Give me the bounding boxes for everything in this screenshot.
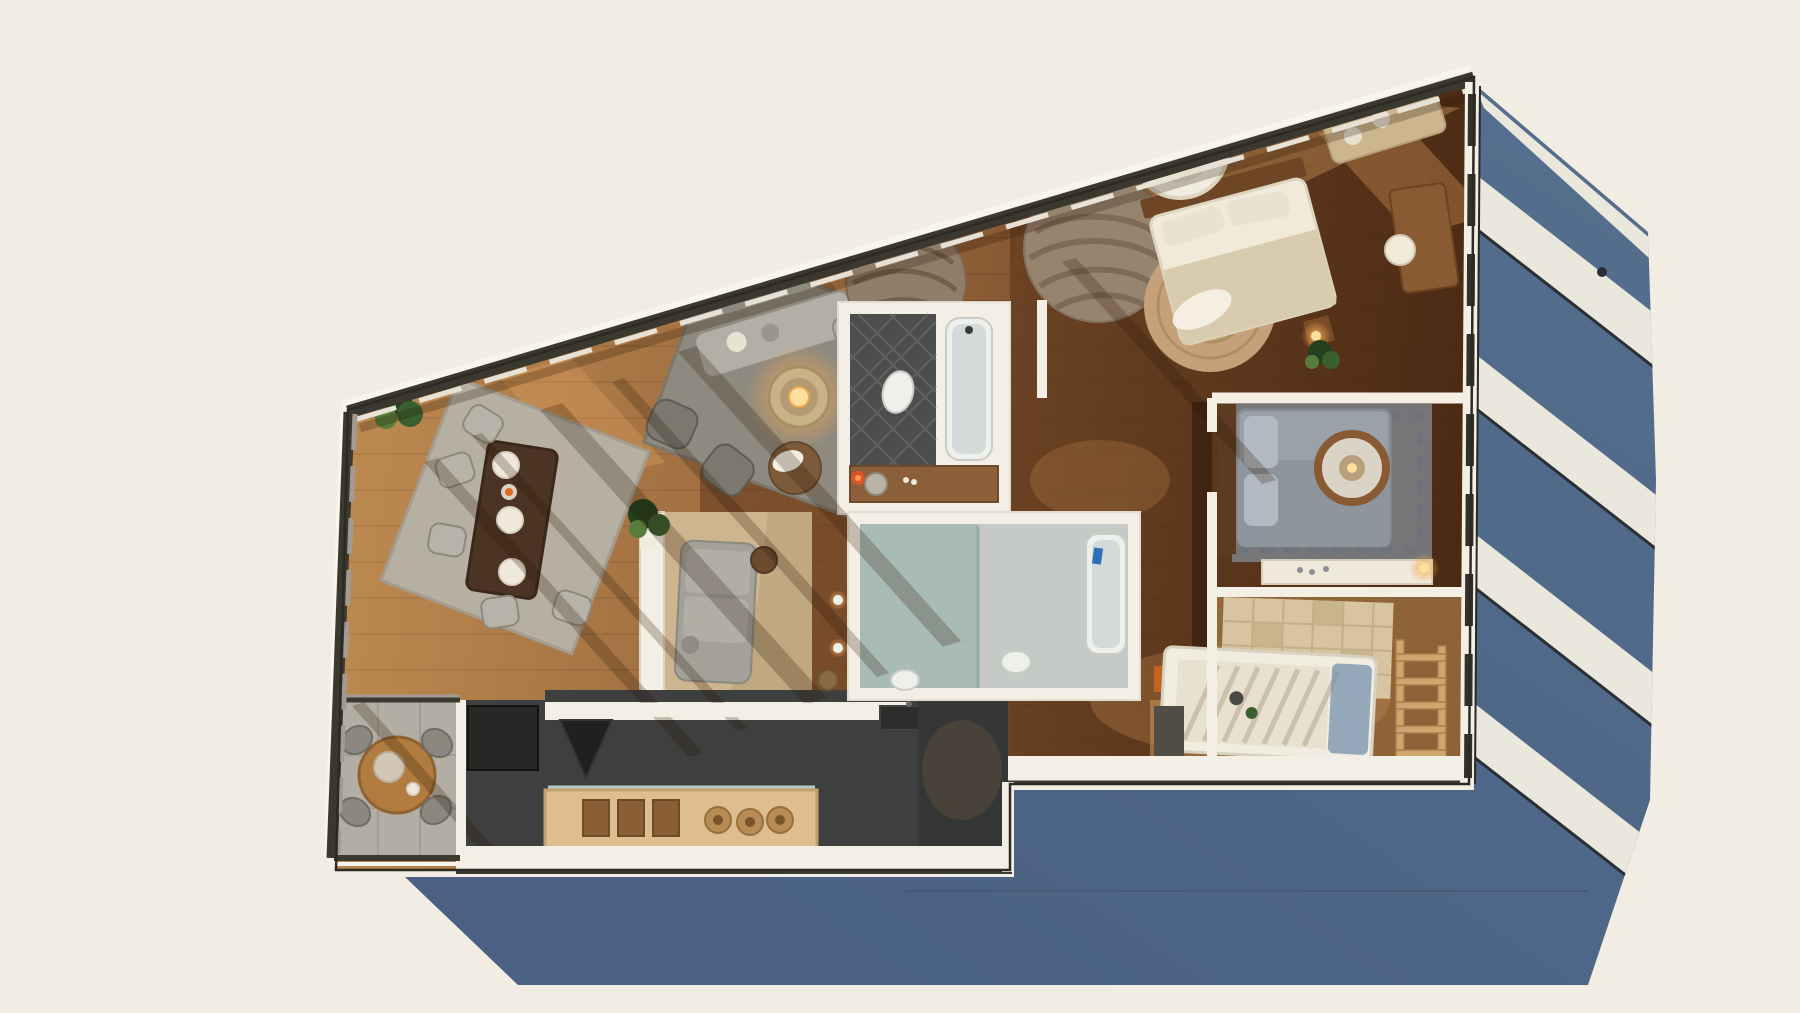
bathroom-secondary	[848, 512, 1140, 700]
plant-leaves	[1322, 351, 1340, 369]
balcony-terrace	[334, 700, 460, 858]
mat-square	[1252, 622, 1283, 647]
dresser-shelf	[1262, 560, 1432, 584]
bottle	[911, 479, 917, 485]
dining-chair	[480, 595, 520, 630]
dresser-lamp	[1419, 563, 1429, 573]
faucet	[906, 701, 912, 707]
perfume-bottle	[1297, 567, 1303, 573]
bunk-bed	[1160, 646, 1377, 761]
bottle	[903, 477, 909, 483]
mat-square	[1313, 600, 1344, 625]
bathtub-basin	[952, 324, 986, 454]
wall-sconce	[833, 643, 843, 653]
bar-drawer	[583, 800, 609, 836]
fruit-bowl	[505, 488, 513, 496]
ladder-rung	[1396, 726, 1446, 733]
wash-basin	[891, 670, 919, 690]
south-wall-right	[1008, 756, 1470, 782]
warm-light	[922, 720, 1002, 820]
ladder-rung	[1396, 750, 1446, 757]
wall-sconce	[833, 595, 843, 605]
floorplan-canvas	[0, 0, 1800, 1013]
bathroom-primary	[838, 302, 1010, 514]
plant-leaves	[1305, 355, 1319, 369]
perfume-bottle	[1323, 566, 1329, 572]
basket	[818, 670, 838, 690]
bedside-lamp	[1311, 331, 1321, 341]
second-bedroom	[1218, 404, 1439, 584]
toilet	[1001, 651, 1031, 673]
stone-basin	[865, 473, 887, 495]
ladder-rung	[1396, 702, 1446, 709]
plant-pot	[640, 538, 656, 549]
wall-vent-dot	[1597, 267, 1607, 277]
ladder-rung	[1396, 678, 1446, 685]
candle-flame	[855, 475, 861, 481]
desk-chair	[1385, 235, 1415, 265]
tub-faucet	[965, 326, 973, 334]
bar-drawer	[653, 800, 679, 836]
perfume-bottle	[1309, 569, 1315, 575]
ladder-rung	[1396, 654, 1446, 661]
appliance-block	[468, 706, 538, 770]
floorplan-render	[0, 0, 1800, 1013]
dining-chair	[427, 522, 468, 558]
lamp-core	[789, 387, 809, 407]
ring-rug-dot	[1347, 463, 1357, 473]
plate	[407, 783, 419, 795]
stool-center	[745, 817, 755, 827]
blue-bedding	[1328, 663, 1373, 755]
south-wall-step	[1002, 782, 1014, 872]
sun-pool-hall	[1030, 440, 1170, 520]
stool-center	[713, 815, 723, 825]
stool-center	[775, 815, 785, 825]
bar-drawer	[618, 800, 644, 836]
south-wall-kitchen	[456, 846, 1012, 872]
